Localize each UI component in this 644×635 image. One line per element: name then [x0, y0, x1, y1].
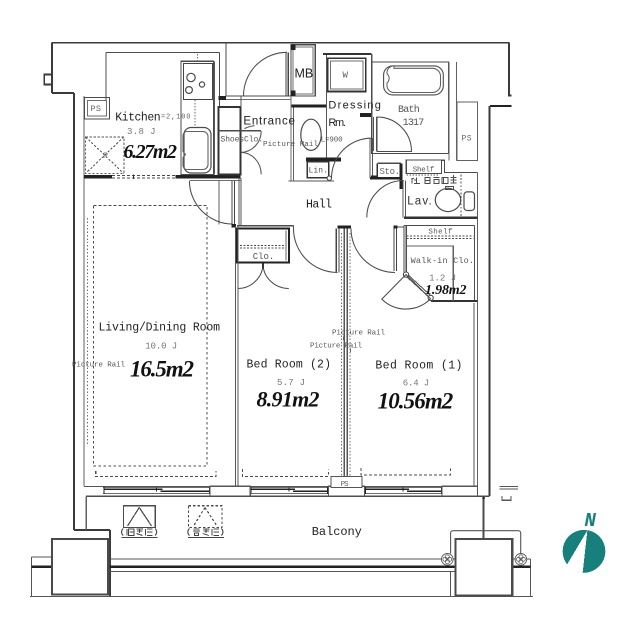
svg-text:Kitchen: Kitchen [115, 112, 161, 125]
svg-text:6.27m2: 6.27m2 [124, 141, 178, 163]
svg-text:Picture Rail: Picture Rail [310, 343, 362, 351]
svg-text:Picture Rail: Picture Rail [72, 362, 125, 370]
svg-text:L=900: L=900 [321, 137, 343, 145]
svg-text:16.5m2: 16.5m2 [130, 357, 194, 382]
svg-text:Lav.: Lav. [407, 196, 432, 208]
svg-text:Bath: Bath [398, 104, 420, 116]
svg-text:Picture Rail: Picture Rail [332, 330, 385, 338]
svg-text:N: N [585, 510, 597, 532]
svg-text:Bed Room (1): Bed Room (1) [375, 360, 462, 373]
svg-text:=2,100: =2,100 [161, 114, 191, 122]
svg-text:3.8 J: 3.8 J [127, 127, 156, 137]
svg-text:Balcony: Balcony [312, 525, 362, 539]
svg-text:R: R [103, 151, 108, 161]
svg-text:PS: PS [462, 135, 472, 144]
svg-text:Bed Room (2): Bed Room (2) [247, 359, 332, 372]
svg-text:PS: PS [91, 104, 102, 114]
svg-text:8.91m2: 8.91m2 [257, 387, 320, 412]
svg-text:Sto.: Sto. [380, 167, 401, 177]
svg-text:PS: PS [341, 481, 349, 489]
svg-text:W: W [343, 71, 349, 81]
svg-text:Walk-in Clo.: Walk-in Clo. [411, 256, 475, 266]
svg-text:6.4 J: 6.4 J [403, 379, 430, 389]
svg-text:Entrance: Entrance [243, 116, 295, 128]
svg-text:1.98m2: 1.98m2 [425, 283, 467, 298]
svg-text:Clo.: Clo. [253, 252, 275, 262]
svg-text:Dressing: Dressing [328, 100, 381, 112]
svg-text:Lin.: Lin. [309, 167, 329, 176]
svg-text:Living/Dining Room: Living/Dining Room [99, 322, 221, 335]
svg-text:Hall: Hall [306, 199, 332, 212]
svg-text:1317: 1317 [403, 118, 425, 129]
svg-text:MB: MB [295, 67, 314, 81]
svg-text:Picture Rail: Picture Rail [263, 141, 318, 149]
svg-text:10.56m2: 10.56m2 [378, 389, 454, 414]
svg-text:Shelf: Shelf [428, 228, 452, 236]
svg-text:ShoesClo.: ShoesClo. [221, 136, 264, 145]
svg-text:Rm.: Rm. [328, 117, 346, 129]
svg-text:10.0 J: 10.0 J [145, 342, 177, 352]
svg-text:Shelf: Shelf [413, 167, 435, 175]
